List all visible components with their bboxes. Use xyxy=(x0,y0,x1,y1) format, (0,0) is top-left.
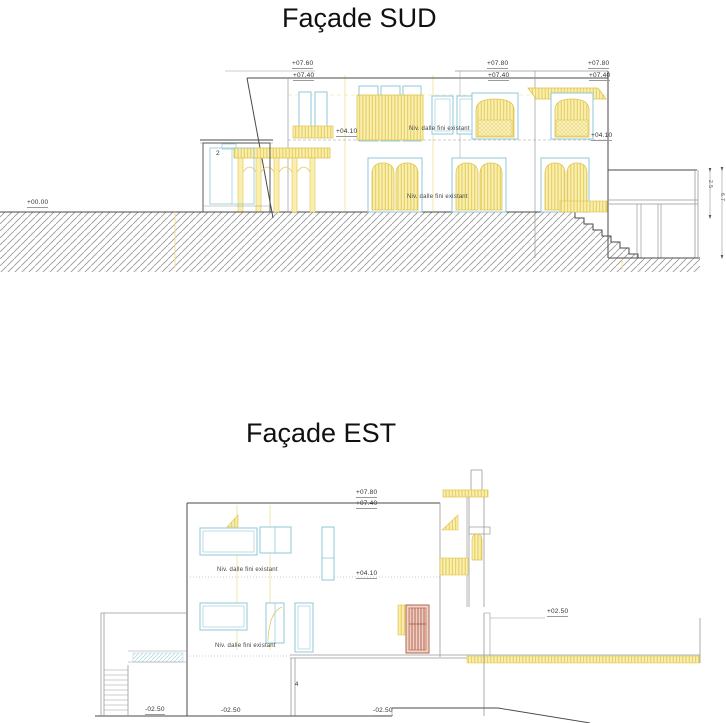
chimney xyxy=(440,470,490,607)
level-label: +07.40 xyxy=(589,72,610,81)
room-number: 2 xyxy=(216,150,220,157)
balcony-railing xyxy=(293,126,333,138)
pergola xyxy=(222,144,330,212)
terrace-and-ground xyxy=(95,613,700,723)
level-label: +04.10 xyxy=(356,570,377,579)
dimension-label: 6.7 xyxy=(719,193,725,201)
facade-sud-drawing xyxy=(0,40,726,290)
level-label: +07.80 xyxy=(487,60,508,69)
terrain-section xyxy=(0,212,700,272)
staircase xyxy=(101,613,187,716)
level-label: +07.40 xyxy=(293,72,314,81)
level-label: +04.10 xyxy=(336,128,357,137)
terrace-railing xyxy=(467,656,700,663)
facade-est-title: Façade EST xyxy=(246,418,396,449)
annex-building xyxy=(608,170,698,258)
parapet-coping xyxy=(443,490,488,497)
dimension-label: 2.5 xyxy=(707,180,713,188)
level-label: +07.40 xyxy=(356,500,377,509)
level-label: +07.80 xyxy=(356,489,377,498)
slab-note: Niv. dalle fini existant xyxy=(217,567,278,573)
level-label: +07.80 xyxy=(588,60,609,69)
room-number: 4 xyxy=(295,682,298,688)
level-label: +02.50 xyxy=(547,608,568,617)
red-door xyxy=(406,605,429,653)
level-label: +00.00 xyxy=(27,199,48,208)
balcony-railing xyxy=(357,95,423,140)
level-label: -02.50 xyxy=(221,707,241,716)
arched-niche xyxy=(472,534,482,560)
glass-balustrade xyxy=(133,653,183,662)
slab-note: Niv. dalle fini existant xyxy=(409,126,470,132)
level-label: -02.50 xyxy=(145,706,165,715)
slab-note: Niv. dalle fini existant xyxy=(407,194,468,200)
slab-note: Niv. dalle fini existant xyxy=(215,643,276,649)
drawing-sheet: Façade SUD Façade EST +07.60 +07.40 +07.… xyxy=(0,0,726,723)
low-fence xyxy=(560,201,607,212)
facade-sud-title: Façade SUD xyxy=(282,3,437,34)
level-label: +07.60 xyxy=(292,60,313,69)
level-label: -02.50 xyxy=(373,707,393,716)
level-label: +04.10 xyxy=(591,132,612,141)
ground-floor-doors xyxy=(368,158,607,212)
level-label: +07.40 xyxy=(488,72,509,81)
